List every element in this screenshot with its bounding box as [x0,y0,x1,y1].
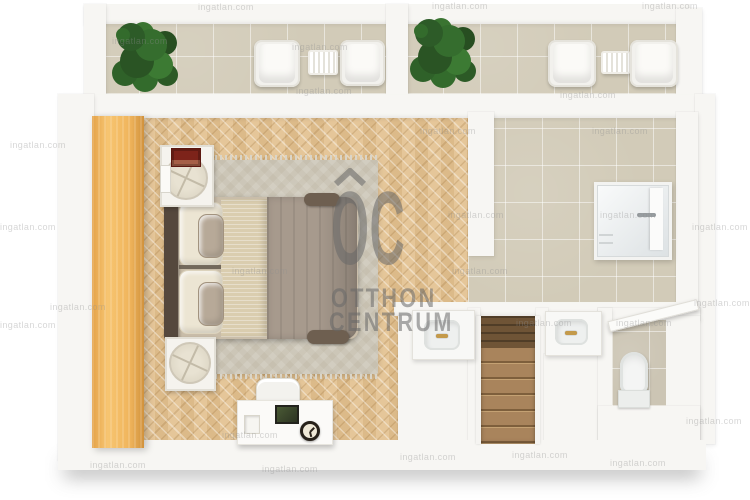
watermark-text: ingatlan.com [516,318,572,328]
watermark-text: ingatlan.com [420,126,476,136]
watermark-text: ingatlan.com [0,320,56,330]
watermark-text: ingatlan.com [10,140,66,150]
toilet-tank [618,390,650,408]
pillow-gap [179,265,221,269]
watermark-text: ingatlan.com [452,266,508,276]
floor-plan-render: ingatlan.com ingatlan.com ingatlan.com i… [0,0,750,500]
watermark-text: ingatlan.com [50,302,106,312]
bed-headboard [164,196,178,340]
balcony-armchair [630,40,678,87]
duvet-fold [307,330,349,344]
watermark-text: ingatlan.com [0,222,56,232]
photo-frame [275,405,299,424]
watermark-text: ingatlan.com [560,90,616,100]
table-clock [300,421,320,441]
nightstand-tray [169,342,211,384]
balcony-right-end-wall [676,8,702,96]
wardrobe [92,116,144,448]
bottom-outer-wall [58,440,706,470]
watermark-text: ingatlan.com [692,222,748,232]
remote-control [160,165,171,193]
watermark-text: ingatlan.com [512,450,568,460]
faucet [436,334,448,338]
shower-shelf [599,234,613,236]
watermark-text: ingatlan.com [292,42,348,52]
watermark-text: ingatlan.com [616,318,672,328]
balcony-left-end-wall [84,4,106,96]
balcony-armchair [548,40,596,87]
potted-plant-right [414,24,428,38]
watermark-text: ingatlan.com [112,36,168,46]
staircase-stringer-right [535,316,540,444]
watermark-text: ingatlan.com [694,298,750,308]
red-book [171,148,201,167]
watermark-text: ingatlan.com [610,458,666,468]
watermark-text: ingatlan.com [642,1,698,11]
balcony-side-table [308,50,338,75]
watermark-text: ingatlan.com [600,210,656,220]
accent-pillow [198,214,224,258]
watermark-text: ingatlan.com [198,2,254,12]
watermark-text: ingatlan.com [90,460,146,470]
watermark-text: ingatlan.com [686,416,742,426]
shower-shelf [599,242,613,244]
bathroom-right-wall [676,112,698,314]
watermark-text: ingatlan.com [232,266,288,276]
watermark-text: ingatlan.com [592,126,648,136]
watermark-text: ingatlan.com [448,210,504,220]
duvet-fold [304,193,340,206]
watermark-text: ingatlan.com [296,86,352,96]
toilet-bowl [620,352,648,394]
balcony-divider-wall [386,4,408,96]
faucet [565,331,577,335]
watermark-text: ingatlan.com [432,1,488,11]
below-right-vanity-block [544,354,600,444]
staircase-stringer-left [476,316,481,444]
watermark-text: ingatlan.com [222,430,278,440]
logo-roof-icon [333,168,367,186]
balcony-side-table [601,51,631,74]
accent-pillow [198,282,224,326]
wc-bottom-wall [598,406,700,444]
watermark-text: ingatlan.com [262,464,318,474]
watermark-text: ingatlan.com [400,452,456,462]
